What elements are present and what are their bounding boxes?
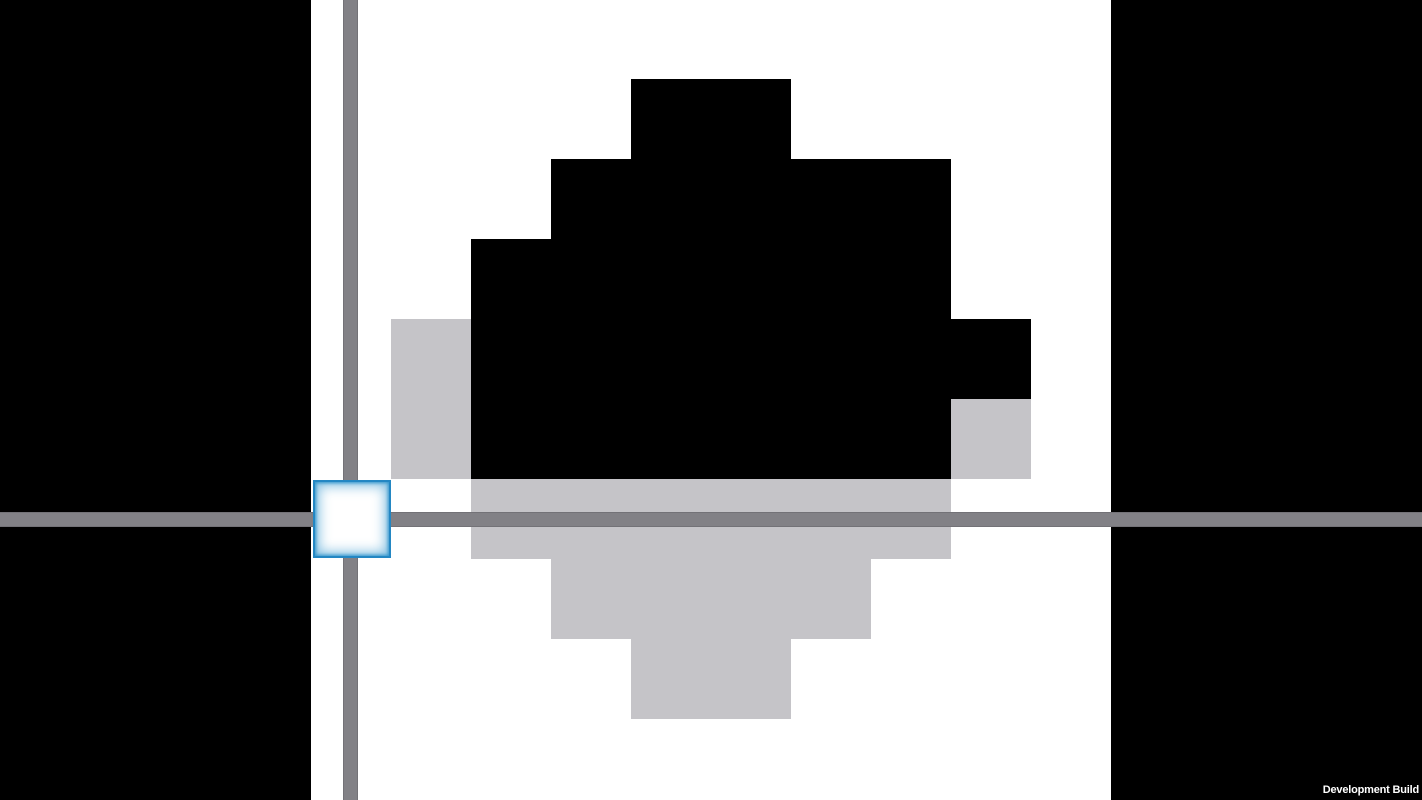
block-tile-black[interactable]: [551, 239, 631, 319]
block-tile-black[interactable]: [711, 399, 791, 479]
block-tile-black[interactable]: [711, 159, 791, 239]
side-panel-left: [0, 0, 311, 800]
block-tile-black[interactable]: [791, 319, 871, 399]
block-tile-black[interactable]: [471, 239, 551, 319]
game-viewport: Development Build: [0, 0, 1422, 800]
block-tile-black[interactable]: [871, 399, 951, 479]
ghost-tile-gray[interactable]: [711, 559, 791, 639]
block-tile-black[interactable]: [631, 399, 711, 479]
block-tile-black[interactable]: [871, 159, 951, 239]
block-tile-black[interactable]: [471, 319, 551, 399]
vertical-axis-line: [343, 0, 358, 800]
block-tile-black[interactable]: [551, 319, 631, 399]
ghost-tile-gray[interactable]: [711, 639, 791, 719]
block-tile-black[interactable]: [471, 399, 551, 479]
block-tile-black[interactable]: [631, 79, 711, 159]
block-tile-black[interactable]: [631, 159, 711, 239]
block-tile-black[interactable]: [631, 239, 711, 319]
block-tile-black[interactable]: [951, 319, 1031, 399]
horizontal-axis-line: [0, 512, 1422, 527]
dev-build-watermark: Development Build: [1323, 784, 1419, 796]
ghost-tile-gray[interactable]: [551, 559, 631, 639]
block-tile-black[interactable]: [551, 399, 631, 479]
block-tile-black[interactable]: [791, 399, 871, 479]
selection-cursor[interactable]: [313, 480, 391, 558]
block-tile-black[interactable]: [791, 239, 871, 319]
block-tile-black[interactable]: [711, 79, 791, 159]
ghost-tile-gray[interactable]: [391, 319, 471, 399]
block-tile-black[interactable]: [711, 319, 791, 399]
block-tile-black[interactable]: [871, 319, 951, 399]
block-tile-black[interactable]: [871, 239, 951, 319]
block-tile-black[interactable]: [631, 319, 711, 399]
block-tile-black[interactable]: [711, 239, 791, 319]
ghost-tile-gray[interactable]: [951, 399, 1031, 479]
block-tile-black[interactable]: [551, 159, 631, 239]
side-panel-right: [1111, 0, 1422, 800]
ghost-tile-gray[interactable]: [631, 559, 711, 639]
ghost-tile-gray[interactable]: [391, 399, 471, 479]
ghost-tile-gray[interactable]: [791, 559, 871, 639]
block-tile-black[interactable]: [791, 159, 871, 239]
ghost-tile-gray[interactable]: [631, 639, 711, 719]
